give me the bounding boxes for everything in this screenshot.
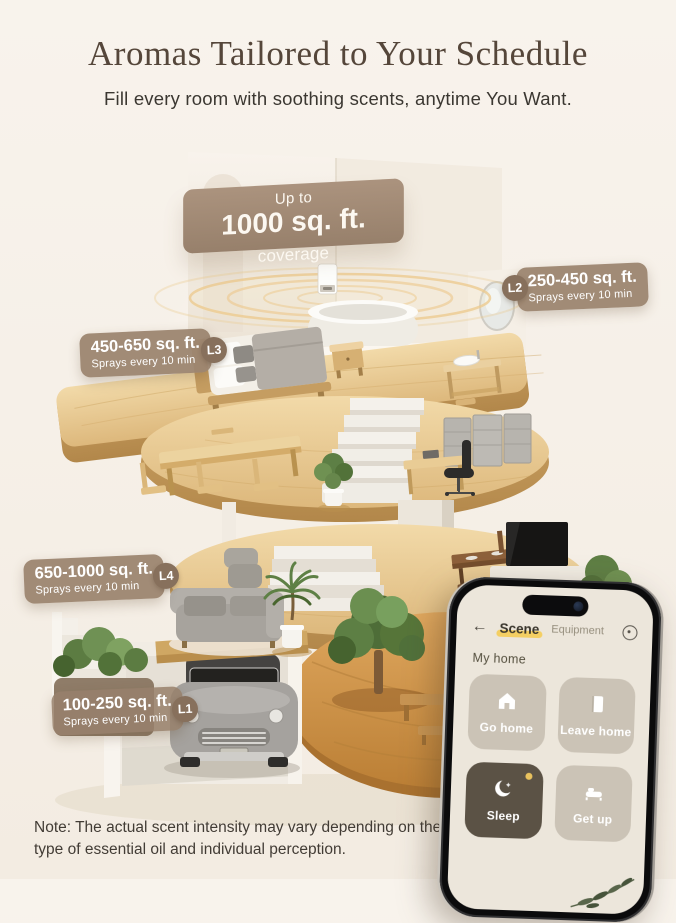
coverage-badge: Up to 1000 sq. ft. coverage xyxy=(183,178,404,254)
level-label-l3: L3 450-650 sq. ft. Sprays every 10 min xyxy=(79,328,212,377)
level-label-l4: L4 650-1000 sq. ft. Sprays every 10 min xyxy=(23,554,165,604)
level-label-l2: L2 250-450 sq. ft. Sprays every 10 min xyxy=(516,262,649,311)
scene-buttons-grid: Go home Leave home Sleep Get up xyxy=(449,673,651,843)
phone-mockup: ← Scene Equipment My home Go home Leave … xyxy=(439,576,663,923)
dynamic-island xyxy=(522,594,589,616)
coverage-badge-value: 1000 sq. ft. xyxy=(221,202,366,241)
get-up-button[interactable]: Get up xyxy=(554,765,633,843)
page-background: Aromas Tailored to Your Schedule Fill ev… xyxy=(0,0,676,879)
door-icon xyxy=(585,693,608,716)
front-camera xyxy=(573,601,583,611)
dial-icon[interactable] xyxy=(622,625,638,641)
phone-screen: ← Scene Equipment My home Go home Leave … xyxy=(447,584,654,915)
home-icon xyxy=(496,690,519,713)
tab-scene[interactable]: Scene xyxy=(499,620,539,636)
leave-home-button[interactable]: Leave home xyxy=(557,677,636,755)
footer-note: Note: The actual scent intensity may var… xyxy=(34,817,466,862)
bed-icon xyxy=(582,781,605,804)
page-title: Aromas Tailored to Your Schedule xyxy=(0,34,676,74)
phone-frame: ← Scene Equipment My home Go home Leave … xyxy=(439,576,663,923)
back-icon[interactable]: ← xyxy=(471,619,488,636)
diffuser-device xyxy=(318,264,337,294)
go-home-button[interactable]: Go home xyxy=(467,674,546,752)
section-title: My home xyxy=(455,634,652,680)
active-dot xyxy=(525,773,532,780)
level-label-l1: L1 100-250 sq. ft. Sprays every 10 min xyxy=(51,686,184,735)
tab-equipment[interactable]: Equipment xyxy=(551,624,604,638)
decor-leaves xyxy=(565,864,641,913)
level-badge-l2: L2 xyxy=(501,274,528,301)
moon-icon xyxy=(493,778,516,801)
bathtub xyxy=(308,300,418,346)
page-subtitle: Fill every room with soothing scents, an… xyxy=(0,88,676,110)
sleep-button[interactable]: Sleep xyxy=(464,762,543,840)
coverage-badge-suffix: coverage xyxy=(258,244,329,267)
